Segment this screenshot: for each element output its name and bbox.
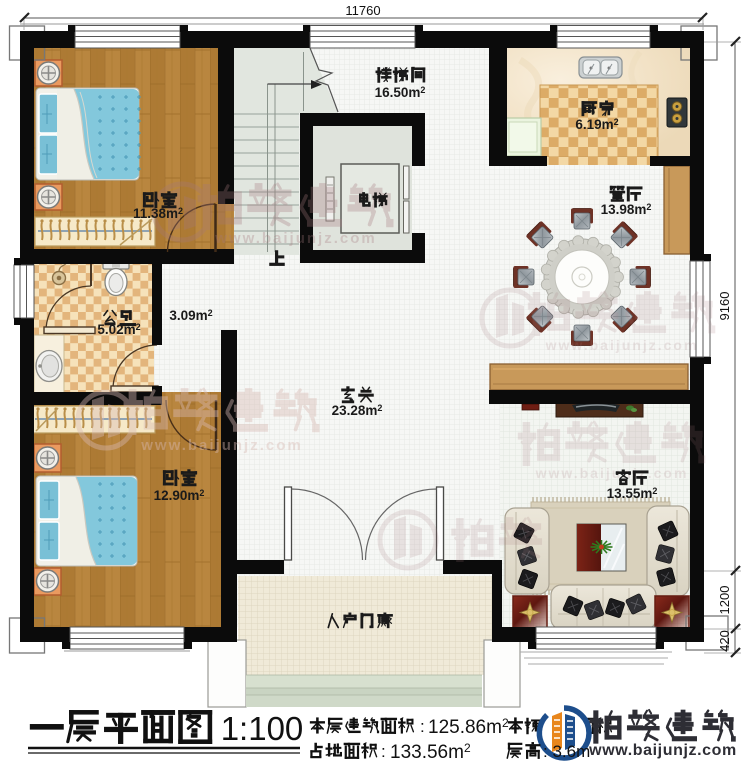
svg-text:420: 420 — [717, 630, 732, 652]
svg-text:www.baijunjz.com: www.baijunjz.com — [545, 337, 699, 353]
svg-text:133.56m2: 133.56m2 — [390, 741, 471, 763]
svg-text:12.90m2: 12.90m2 — [154, 488, 205, 503]
svg-text:11.38m2: 11.38m2 — [133, 206, 183, 221]
svg-text:5.02m2: 5.02m2 — [97, 322, 140, 337]
svg-text:13.98m2: 13.98m2 — [601, 202, 652, 217]
svg-text:1200: 1200 — [717, 586, 732, 615]
svg-text:13.55m2: 13.55m2 — [607, 486, 658, 501]
svg-text:www.baijunjz.com: www.baijunjz.com — [214, 230, 376, 247]
svg-text:3.09m2: 3.09m2 — [169, 308, 212, 323]
svg-text:16.50m2: 16.50m2 — [375, 85, 426, 100]
svg-text:www.baijunjz.com: www.baijunjz.com — [535, 465, 689, 481]
svg-text::: : — [381, 742, 386, 761]
svg-text:6.19m2: 6.19m2 — [575, 117, 618, 132]
svg-text:www.baijunjz.com: www.baijunjz.com — [140, 437, 302, 454]
svg-text:125.86m2: 125.86m2 — [428, 716, 509, 738]
svg-text:9160: 9160 — [717, 292, 732, 321]
svg-text::: : — [420, 717, 425, 736]
svg-text:11760: 11760 — [345, 3, 380, 18]
svg-text:1:100: 1:100 — [221, 710, 304, 747]
svg-text:: 3.6m: : 3.6m — [543, 742, 590, 761]
svg-text:www.baijunjz.com: www.baijunjz.com — [588, 742, 737, 759]
svg-text:23.28m2: 23.28m2 — [332, 403, 383, 418]
